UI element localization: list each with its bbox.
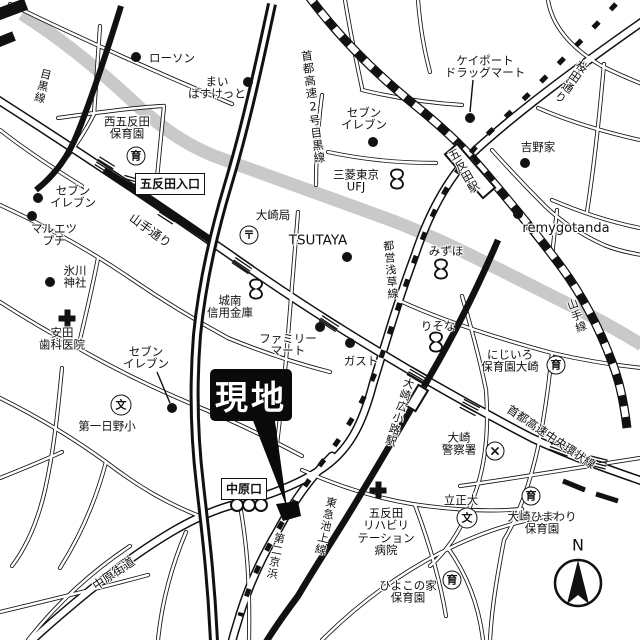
compass-rose xyxy=(555,560,601,606)
map-canvas: 〒文文育育育育× 目黒線ローソンまいばすけっと西五反田保育園セブンイレブンマルエ… xyxy=(0,0,640,640)
chuo-kanjo-dashes xyxy=(563,481,618,501)
asakusa-subway-line xyxy=(240,4,616,616)
edge-rail-bar-2 xyxy=(0,36,14,44)
site-callout: 現地 xyxy=(210,369,292,421)
shuto-2-expressway xyxy=(195,4,272,640)
map-geometry xyxy=(0,0,640,640)
gotanda-entrance-ramp xyxy=(104,170,210,240)
